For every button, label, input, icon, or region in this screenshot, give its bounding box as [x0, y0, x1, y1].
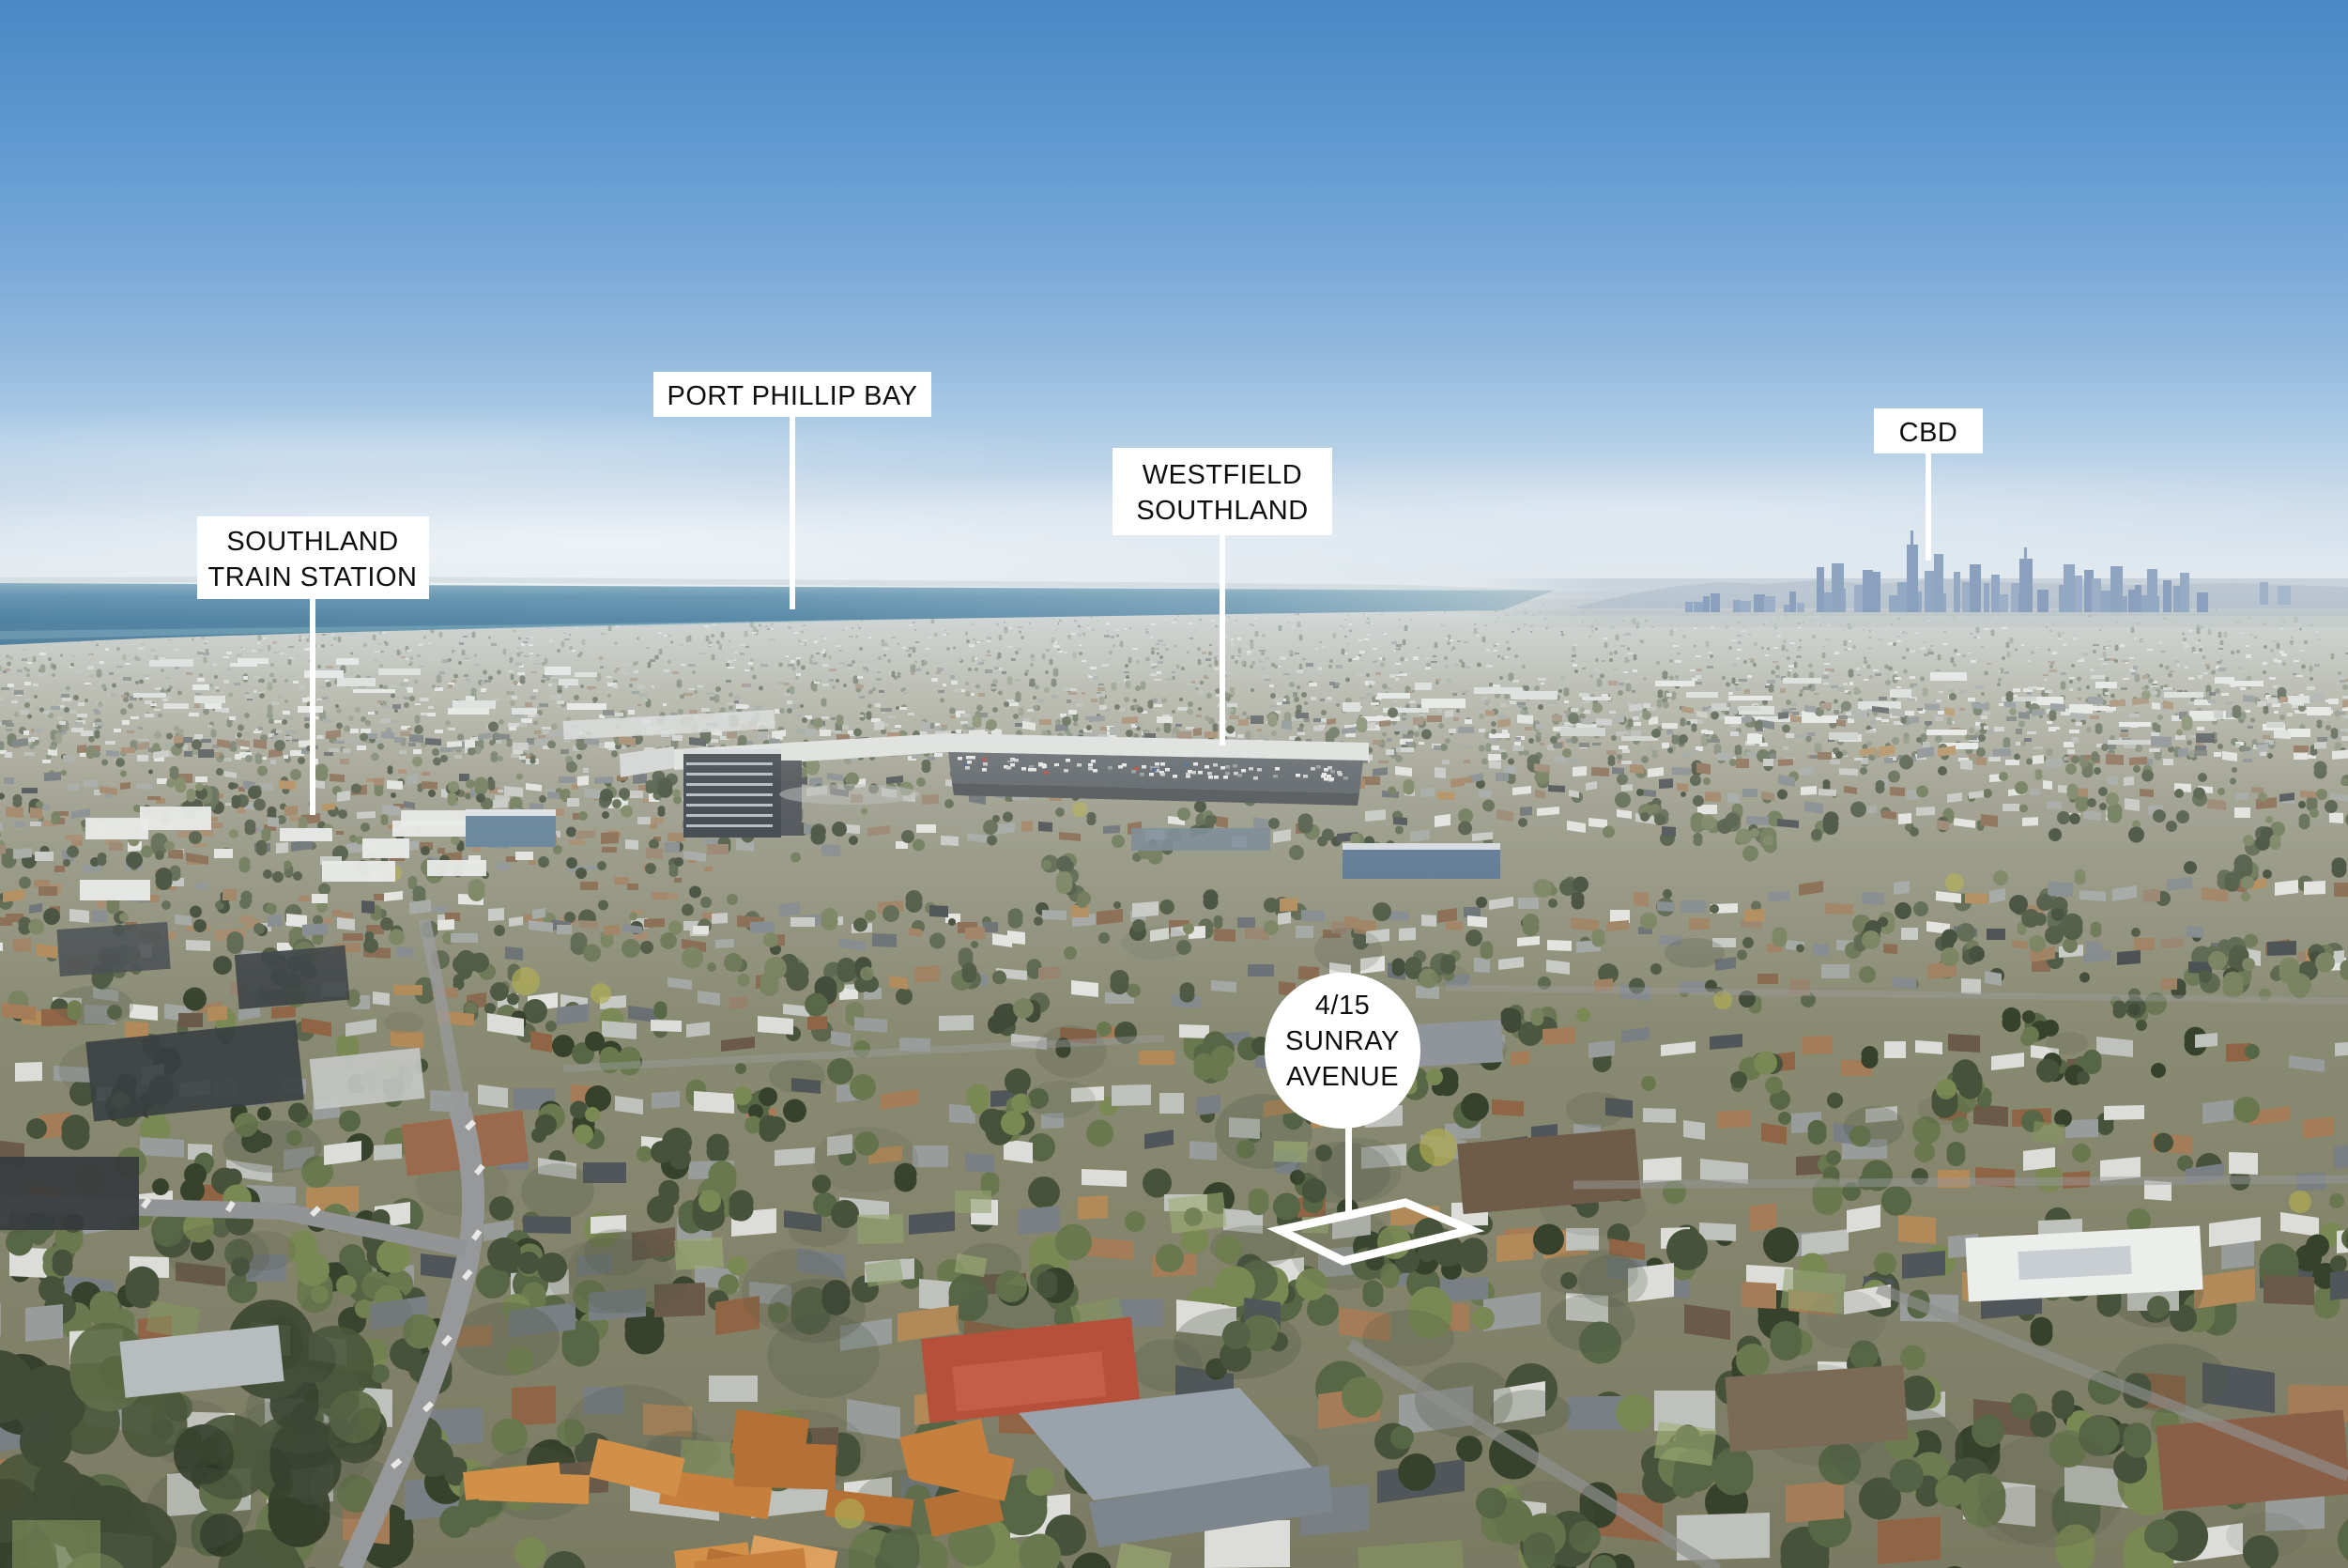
svg-text:SUNRAY: SUNRAY: [1285, 1026, 1400, 1056]
svg-text:WESTFIELD: WESTFIELD: [1143, 460, 1302, 490]
svg-text:SOUTHLAND: SOUTHLAND: [226, 527, 398, 557]
svg-text:CBD: CBD: [1899, 418, 1958, 448]
svg-text:4/15: 4/15: [1315, 991, 1370, 1021]
svg-text:AVENUE: AVENUE: [1286, 1062, 1399, 1092]
svg-text:TRAIN STATION: TRAIN STATION: [208, 562, 418, 592]
svg-text:SOUTHLAND: SOUTHLAND: [1136, 496, 1308, 526]
svg-text:PORT PHILLIP BAY: PORT PHILLIP BAY: [668, 381, 918, 411]
